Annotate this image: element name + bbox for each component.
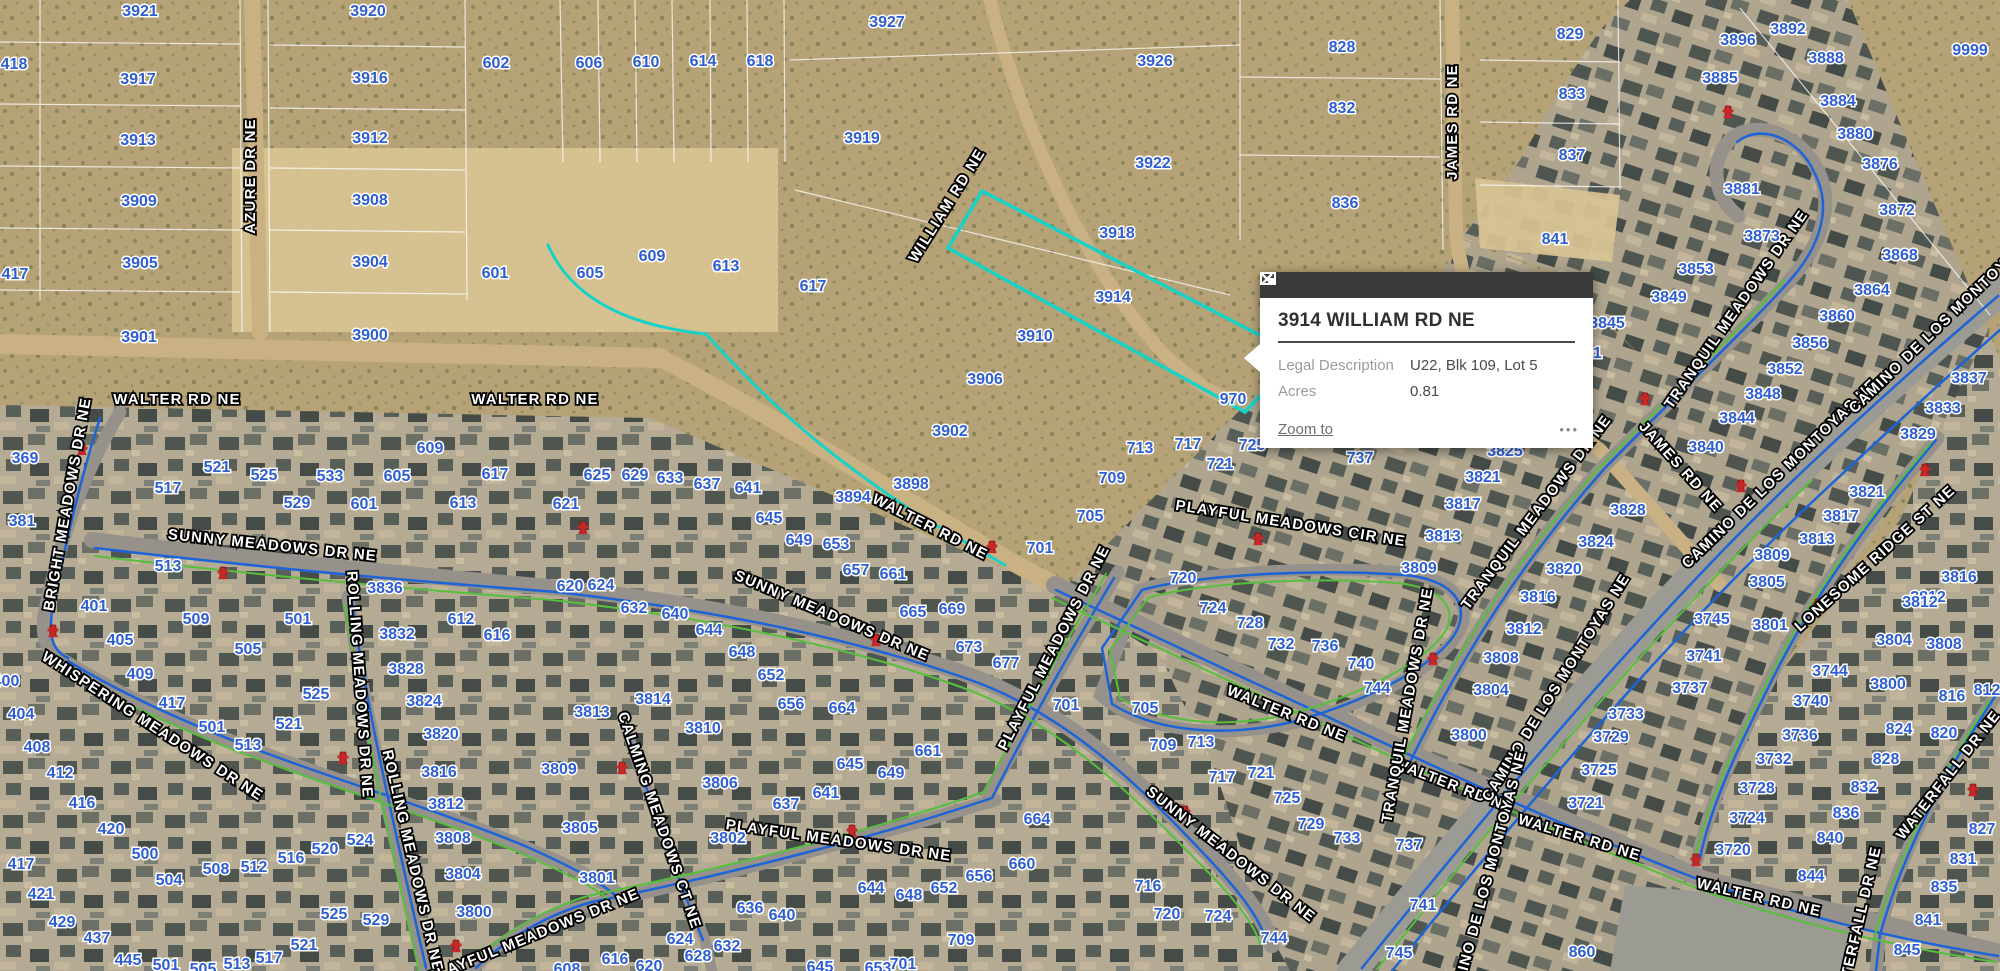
parcel-label[interactable]: 827 bbox=[1969, 821, 1996, 838]
hydrant-arms bbox=[48, 629, 59, 632]
parcel-label[interactable]: 3880 bbox=[1837, 126, 1873, 143]
parcel-label[interactable]: 836 bbox=[1833, 805, 1860, 822]
parcel-label[interactable]: 437 bbox=[84, 930, 111, 947]
feature-popup: 3914 WILLIAM RD NE Legal Description U22… bbox=[1260, 272, 1593, 448]
parcel-label[interactable]: 713 bbox=[1127, 440, 1154, 457]
parcel-label[interactable]: 644 bbox=[858, 880, 885, 897]
parcel-label[interactable]: 3901 bbox=[121, 329, 157, 346]
parcel-label[interactable]: 3848 bbox=[1745, 386, 1781, 403]
parcel-label[interactable]: 3849 bbox=[1651, 289, 1687, 306]
parcel-label[interactable]: 3927 bbox=[869, 14, 905, 31]
parcel-label[interactable]: 3801 bbox=[579, 870, 615, 887]
parcel-label[interactable]: 3820 bbox=[1546, 561, 1582, 578]
parcel-label[interactable]: 500 bbox=[132, 846, 159, 863]
parcel-label[interactable]: 429 bbox=[49, 914, 76, 931]
parcel-label[interactable]: 3817 bbox=[1445, 496, 1481, 513]
parcel-label[interactable]: 3804 bbox=[1473, 682, 1509, 699]
parcel-label[interactable]: 736 bbox=[1312, 638, 1339, 655]
parcel-label[interactable]: 3812 bbox=[428, 796, 464, 813]
parcel-label[interactable]: 3728 bbox=[1739, 780, 1775, 797]
parcel-label[interactable]: 3802 bbox=[710, 830, 746, 847]
parcel-label[interactable]: 632 bbox=[621, 600, 648, 617]
parcel-label[interactable]: 513 bbox=[235, 737, 262, 754]
parcel-label[interactable]: 521 bbox=[291, 937, 318, 954]
parcel-label[interactable]: 3816 bbox=[1941, 569, 1977, 586]
parcel-label[interactable]: 3904 bbox=[352, 254, 388, 271]
parcel-label[interactable]: 660 bbox=[1009, 856, 1036, 873]
parcel-label[interactable]: 3894 bbox=[835, 489, 871, 506]
hydrant-arms bbox=[1253, 537, 1264, 540]
parcel-label[interactable]: 648 bbox=[729, 644, 756, 661]
parcel-label[interactable]: 3821 bbox=[1465, 469, 1501, 486]
parcel-label[interactable]: 724 bbox=[1205, 908, 1232, 925]
parcel-label[interactable]: 3800 bbox=[1870, 676, 1906, 693]
parcel-label[interactable]: 605 bbox=[384, 468, 411, 485]
parcel-label[interactable]: 3913 bbox=[120, 132, 156, 149]
parcel-label[interactable]: 625 bbox=[584, 467, 611, 484]
parcel-label[interactable]: 617 bbox=[800, 278, 827, 295]
parcel-label[interactable]: 3828 bbox=[1610, 502, 1646, 519]
parcel-label[interactable]: 3810 bbox=[685, 720, 721, 737]
parcel-label[interactable]: 661 bbox=[915, 743, 942, 760]
parcel-label[interactable]: 3733 bbox=[1608, 706, 1644, 723]
parcel-label[interactable]: 828 bbox=[1873, 751, 1900, 768]
parcel-label[interactable]: 741 bbox=[1410, 897, 1437, 914]
map-svg[interactable]: AZURE DR NEWILLIAM RD NEJAMES RD NEJAMES… bbox=[0, 0, 2000, 971]
parcel-label[interactable]: 3902 bbox=[932, 423, 968, 440]
parcel-label[interactable]: 609 bbox=[417, 440, 444, 457]
parcel-label[interactable]: 3914 bbox=[1095, 289, 1131, 306]
dock-icon[interactable] bbox=[1541, 278, 1557, 292]
parcel-label[interactable]: 618 bbox=[747, 53, 774, 70]
parcel-label[interactable]: 665 bbox=[900, 604, 927, 621]
parcel-label[interactable]: 3816 bbox=[1520, 589, 1556, 606]
parcel-label[interactable]: 606 bbox=[576, 55, 603, 72]
parcel-label[interactable]: 3844 bbox=[1719, 410, 1755, 427]
parcel-label[interactable]: 709 bbox=[1150, 737, 1177, 754]
field-row: Legal Description U22, Blk 109, Lot 5 bbox=[1278, 353, 1575, 379]
parcel-label[interactable]: 617 bbox=[482, 466, 509, 483]
parcel-label[interactable]: 720 bbox=[1154, 906, 1181, 923]
hydrant-base bbox=[1921, 474, 1930, 476]
parcel-label[interactable]: 605 bbox=[577, 265, 604, 282]
parcel-label[interactable]: 501 bbox=[153, 957, 180, 971]
parcel-label[interactable]: 3812 bbox=[1506, 621, 1542, 638]
parcel-label[interactable]: 616 bbox=[602, 951, 629, 968]
parcel-label[interactable]: 3740 bbox=[1793, 693, 1829, 710]
parcel-label[interactable]: 656 bbox=[966, 868, 993, 885]
parcel-label[interactable]: 3805 bbox=[1749, 574, 1785, 591]
hydrant-base bbox=[1429, 663, 1438, 665]
parcel-label[interactable]: 521 bbox=[204, 459, 231, 476]
parcel-label[interactable]: 3814 bbox=[635, 691, 671, 708]
parcel-label[interactable]: 613 bbox=[713, 258, 740, 275]
parcel-label[interactable]: 417 bbox=[2, 266, 29, 283]
parcel-label[interactable]: 417 bbox=[8, 856, 35, 873]
parcel-label[interactable]: 525 bbox=[321, 906, 348, 923]
popup-body: 3914 WILLIAM RD NE Legal Description U22… bbox=[1260, 298, 1593, 448]
parcel-label[interactable]: 713 bbox=[1188, 734, 1215, 751]
parcel-label[interactable]: 3800 bbox=[1451, 727, 1487, 744]
parcel-label[interactable]: 3837 bbox=[1951, 370, 1987, 387]
parcel-label[interactable]: 3898 bbox=[893, 476, 929, 493]
hydrant-base bbox=[1724, 116, 1733, 118]
parcel-label[interactable]: 705 bbox=[1132, 700, 1159, 717]
parcel-label[interactable]: 3720 bbox=[1715, 842, 1751, 859]
parcel-label[interactable]: 628 bbox=[685, 948, 712, 965]
parcel-label[interactable]: 3920 bbox=[350, 3, 386, 20]
parcel-label[interactable]: 3812 bbox=[1902, 594, 1938, 611]
popup-footer: Zoom to ••• bbox=[1278, 421, 1579, 438]
parcel-label[interactable]: 3804 bbox=[1876, 632, 1912, 649]
hydrant-arms bbox=[218, 571, 229, 574]
parcel-label[interactable]: 3737 bbox=[1672, 680, 1708, 697]
parcel-label[interactable]: 3820 bbox=[423, 726, 459, 743]
parcel-label[interactable]: 721 bbox=[1248, 765, 1275, 782]
parcel-label[interactable]: 3917 bbox=[120, 71, 156, 88]
parcel-label[interactable]: 3809 bbox=[1754, 547, 1790, 564]
parcel-label[interactable]: 3912 bbox=[352, 130, 388, 147]
parcel-label[interactable]: 420 bbox=[98, 821, 125, 838]
parcel-label[interactable]: 641 bbox=[813, 785, 840, 802]
parcel-label[interactable]: 645 bbox=[837, 756, 864, 773]
parcel-label[interactable]: 3921 bbox=[122, 3, 158, 20]
close-icon[interactable] bbox=[1567, 278, 1583, 292]
parcel-label[interactable]: 3840 bbox=[1688, 439, 1724, 456]
zoom-to-link[interactable]: Zoom to bbox=[1278, 421, 1333, 438]
parcel-label[interactable]: 701 bbox=[890, 956, 917, 971]
parcel-label[interactable]: 860 bbox=[1569, 944, 1596, 961]
parcel-label[interactable]: 3900 bbox=[352, 327, 388, 344]
parcel-label[interactable]: 3832 bbox=[379, 626, 415, 643]
parcel-label[interactable]: 3732 bbox=[1756, 751, 1792, 768]
hydrant-arms bbox=[338, 756, 349, 759]
parcel-label[interactable]: 3909 bbox=[121, 193, 157, 210]
parcel-label[interactable]: 517 bbox=[155, 480, 182, 497]
parcel-label[interactable]: 516 bbox=[278, 850, 305, 867]
parcel-label[interactable]: 673 bbox=[956, 639, 983, 656]
parcel-label[interactable]: 3919 bbox=[844, 130, 880, 147]
parcel-label[interactable]: 529 bbox=[284, 495, 311, 512]
street-label: AZURE DR NE bbox=[242, 118, 259, 234]
parcel-label[interactable]: 610 bbox=[633, 54, 660, 71]
parcel-label[interactable]: 3926 bbox=[1137, 53, 1173, 70]
parcel-label[interactable]: 9999 bbox=[1952, 42, 1988, 59]
parcel-label[interactable]: 629 bbox=[622, 467, 649, 484]
parcel-label[interactable]: 3852 bbox=[1767, 361, 1803, 378]
parcel-label[interactable]: 3801 bbox=[1752, 617, 1788, 634]
parcel-label[interactable]: 644 bbox=[696, 622, 723, 639]
parcel-label[interactable]: 3856 bbox=[1792, 335, 1828, 352]
parcel-label[interactable]: 3896 bbox=[1720, 32, 1756, 49]
parcel-label[interactable]: 445 bbox=[115, 952, 142, 969]
parcel-label[interactable]: 501 bbox=[199, 719, 226, 736]
hydrant-base bbox=[49, 635, 58, 637]
parcel-label[interactable]: 812 bbox=[1974, 682, 2000, 699]
parcel-label[interactable]: 653 bbox=[823, 536, 850, 553]
parcel-label[interactable]: 624 bbox=[588, 577, 615, 594]
popup-fields: Legal Description U22, Blk 109, Lot 5 Ac… bbox=[1278, 353, 1575, 406]
parcel-label[interactable]: 745 bbox=[1386, 945, 1413, 962]
parcel-label[interactable]: 664 bbox=[1024, 811, 1051, 828]
parcel-label[interactable]: 725 bbox=[1274, 790, 1301, 807]
parcel-label[interactable]: 525 bbox=[303, 686, 330, 703]
parcel-label[interactable]: 632 bbox=[714, 938, 741, 955]
parcel-label[interactable]: 701 bbox=[1027, 540, 1054, 557]
hydrant-arms bbox=[847, 829, 858, 832]
parcel-label[interactable]: 505 bbox=[235, 641, 262, 658]
parcel-label[interactable]: 3853 bbox=[1678, 261, 1714, 278]
parcel-label[interactable]: 601 bbox=[351, 496, 378, 513]
parcel-label[interactable]: 505 bbox=[190, 961, 217, 971]
parcel-label[interactable]: 614 bbox=[690, 53, 717, 70]
parcel-label[interactable]: 3873 bbox=[1744, 228, 1780, 245]
parcel-label[interactable]: 717 bbox=[1209, 769, 1236, 786]
hydrant-arms bbox=[1968, 788, 1979, 791]
parcel-label[interactable]: 409 bbox=[127, 666, 154, 683]
parcel-label[interactable]: 664 bbox=[829, 700, 856, 717]
parcel-label[interactable]: 3729 bbox=[1593, 729, 1629, 746]
parcel-label[interactable]: 3745 bbox=[1694, 611, 1730, 628]
parcel-label[interactable]: 970 bbox=[1220, 391, 1247, 408]
parcel-label[interactable]: 3828 bbox=[388, 661, 424, 678]
parcel-label[interactable]: 3813 bbox=[1799, 531, 1835, 548]
parcel-label[interactable]: 3721 bbox=[1568, 795, 1604, 812]
parcel-label[interactable]: 3885 bbox=[1702, 70, 1738, 87]
parcel-label[interactable]: 513 bbox=[224, 956, 251, 971]
parcel-label[interactable]: 717 bbox=[1175, 436, 1202, 453]
parcel-label[interactable]: 709 bbox=[1099, 470, 1126, 487]
parcel-label[interactable]: 3800 bbox=[456, 904, 492, 921]
parcel-label[interactable]: 512 bbox=[241, 859, 268, 876]
parcel-label[interactable]: 832 bbox=[1851, 779, 1878, 796]
parcel-label[interactable]: 661 bbox=[880, 566, 907, 583]
parcel-label[interactable]: 633 bbox=[657, 470, 684, 487]
parcel-label[interactable]: 716 bbox=[1135, 878, 1162, 895]
parcel-label[interactable]: 656 bbox=[778, 696, 805, 713]
parcel-label[interactable]: 3744 bbox=[1812, 663, 1848, 680]
parcel-label[interactable]: 669 bbox=[939, 601, 966, 618]
parcel-label[interactable]: 3806 bbox=[702, 775, 738, 792]
parcel-label[interactable]: 369 bbox=[12, 450, 39, 467]
parcel-label[interactable]: 841 bbox=[1915, 912, 1942, 929]
parcel-label[interactable]: 3809 bbox=[541, 761, 577, 778]
parcel-label[interactable]: 828 bbox=[1329, 39, 1356, 56]
parcel-label[interactable]: 412 bbox=[47, 765, 74, 782]
parcel-label[interactable]: 645 bbox=[756, 510, 783, 527]
parcel-label[interactable]: 3881 bbox=[1724, 181, 1760, 198]
parcel-label[interactable]: 3916 bbox=[352, 70, 388, 87]
parcel-label[interactable]: 652 bbox=[931, 880, 958, 897]
parcel-label[interactable]: 501 bbox=[285, 611, 312, 628]
parcel-label[interactable]: 729 bbox=[1298, 816, 1325, 833]
parcel-label[interactable]: 3821 bbox=[1849, 484, 1885, 501]
parcel-label[interactable]: 649 bbox=[786, 532, 813, 549]
parcel-label[interactable]: 720 bbox=[1170, 570, 1197, 587]
parcel-label[interactable]: 833 bbox=[1559, 86, 1586, 103]
parcel-label[interactable]: 525 bbox=[251, 467, 278, 484]
parcel-label[interactable]: 641 bbox=[735, 480, 762, 497]
parcel-label[interactable]: 3833 bbox=[1925, 400, 1961, 417]
parcel-label[interactable]: 609 bbox=[639, 248, 666, 265]
parcel-label[interactable]: 3813 bbox=[1425, 528, 1461, 545]
parcel-label[interactable]: 3864 bbox=[1854, 282, 1890, 299]
parcel-label[interactable]: 657 bbox=[843, 562, 870, 579]
parcel-label[interactable]: 3888 bbox=[1808, 50, 1844, 67]
parcel-label[interactable]: 3808 bbox=[1483, 650, 1519, 667]
hydrant-base bbox=[1692, 864, 1701, 866]
parcel-label[interactable]: 636 bbox=[737, 900, 764, 917]
parcel-label[interactable]: 841 bbox=[1542, 231, 1569, 248]
map-viewer: AZURE DR NEWILLIAM RD NEJAMES RD NEJAMES… bbox=[0, 0, 2000, 971]
street-label: JAMES RD NE bbox=[1444, 64, 1461, 180]
parcel-label[interactable]: 737 bbox=[1396, 837, 1423, 854]
field-value: 0.81 bbox=[1410, 379, 1439, 405]
parcel-label[interactable]: 728 bbox=[1237, 615, 1264, 632]
parcel-label[interactable]: 653 bbox=[865, 960, 892, 971]
parcel-label[interactable]: 824 bbox=[1886, 721, 1913, 738]
parcel-label[interactable]: 602 bbox=[483, 55, 510, 72]
parcel-label[interactable]: 401 bbox=[81, 598, 108, 615]
parcel-label[interactable]: 3908 bbox=[352, 192, 388, 209]
parcel-label[interactable]: 640 bbox=[662, 606, 689, 623]
parcel-label[interactable]: 3884 bbox=[1820, 93, 1856, 110]
parcel-label[interactable]: 652 bbox=[758, 667, 785, 684]
parcel-label[interactable]: 421 bbox=[28, 886, 55, 903]
road bbox=[0, 344, 660, 358]
parcel-label[interactable]: 3845 bbox=[1589, 315, 1625, 332]
parcel-label[interactable]: 3808 bbox=[1926, 636, 1962, 653]
parcel-label[interactable]: 416 bbox=[69, 795, 96, 812]
hydrant-base bbox=[618, 772, 627, 774]
parcel-label[interactable]: 616 bbox=[484, 627, 511, 644]
popup-callout-arrow bbox=[1244, 344, 1260, 372]
parcel-label[interactable]: 3808 bbox=[435, 830, 471, 847]
parcel-label[interactable]: 724 bbox=[1200, 600, 1227, 617]
parcel-label[interactable]: 840 bbox=[1817, 830, 1844, 847]
parcel-label[interactable]: 3836 bbox=[367, 580, 403, 597]
parcel-label[interactable]: 732 bbox=[1268, 636, 1295, 653]
parcel-label[interactable]: 649 bbox=[878, 765, 905, 782]
parcel-label[interactable]: 513 bbox=[155, 558, 182, 575]
parcel-label[interactable]: 3805 bbox=[562, 820, 598, 837]
parcel-label[interactable]: 645 bbox=[807, 959, 834, 971]
parcel-label[interactable]: 744 bbox=[1364, 680, 1391, 697]
parcel-label[interactable]: 533 bbox=[317, 468, 344, 485]
parcel-label[interactable]: 829 bbox=[1557, 26, 1584, 43]
parcel-label[interactable]: 3824 bbox=[1578, 534, 1614, 551]
parcel-label[interactable]: 3736 bbox=[1782, 727, 1818, 744]
parcel-label[interactable]: 3724 bbox=[1729, 810, 1765, 827]
parcel-label[interactable]: 835 bbox=[1931, 879, 1958, 896]
parcel-label[interactable]: 3910 bbox=[1017, 328, 1053, 345]
parcel-label[interactable]: 677 bbox=[993, 655, 1020, 672]
hydrant-arms bbox=[1920, 468, 1931, 471]
parcel-label[interactable]: 831 bbox=[1950, 851, 1977, 868]
parcel-label[interactable]: 3741 bbox=[1686, 648, 1722, 665]
parcel-label[interactable]: 3918 bbox=[1099, 225, 1135, 242]
parcel-label[interactable]: 3725 bbox=[1581, 762, 1617, 779]
parcel-label[interactable]: 529 bbox=[363, 912, 390, 929]
parcel-label[interactable]: 816 bbox=[1939, 688, 1966, 705]
parcel-label[interactable]: 3824 bbox=[406, 693, 442, 710]
parcel-label[interactable]: 608 bbox=[554, 961, 581, 971]
parcel-label[interactable]: 3905 bbox=[122, 255, 158, 272]
parcel-label[interactable]: 3876 bbox=[1862, 156, 1898, 173]
parcel-label[interactable]: 3809 bbox=[1401, 560, 1437, 577]
parcel-label[interactable]: 517 bbox=[256, 950, 283, 967]
ellipsis-menu[interactable]: ••• bbox=[1559, 422, 1579, 437]
parcel-label[interactable]: 837 bbox=[1559, 147, 1586, 164]
parcel-label[interactable]: 400 bbox=[0, 673, 19, 690]
parcel-label[interactable]: 508 bbox=[203, 861, 230, 878]
parcel-label[interactable]: 612 bbox=[448, 611, 475, 628]
parcel-label[interactable]: 640 bbox=[769, 907, 796, 924]
parcel-label[interactable]: 3860 bbox=[1819, 308, 1855, 325]
hydrant-arms bbox=[451, 944, 462, 947]
parcel-label[interactable]: 733 bbox=[1334, 830, 1361, 847]
parcel-label[interactable]: 3906 bbox=[967, 371, 1003, 388]
parcel-label[interactable]: 404 bbox=[8, 706, 35, 723]
parcel-label[interactable]: 637 bbox=[773, 796, 800, 813]
hydrant-arms bbox=[1428, 657, 1439, 660]
hydrant-arms bbox=[617, 766, 628, 769]
parcel-label[interactable]: 524 bbox=[347, 832, 374, 849]
parcel-label[interactable]: 721 bbox=[1207, 456, 1234, 473]
parcel-label[interactable]: 417 bbox=[159, 695, 186, 712]
parcel-label[interactable]: 705 bbox=[1077, 508, 1104, 525]
parcel-label[interactable]: 418 bbox=[1, 56, 28, 73]
parcel-label[interactable]: 624 bbox=[667, 931, 694, 948]
parcel-label[interactable]: 3872 bbox=[1879, 202, 1915, 219]
parcel-label[interactable]: 3922 bbox=[1135, 155, 1171, 172]
hydrant-base bbox=[219, 577, 228, 579]
parcel-label[interactable]: 621 bbox=[553, 496, 580, 513]
parcel-label[interactable]: 3892 bbox=[1770, 21, 1806, 38]
parcel-label[interactable]: 408 bbox=[24, 739, 51, 756]
parcel-label[interactable]: 820 bbox=[1931, 725, 1958, 742]
parcel-label[interactable]: 520 bbox=[312, 841, 339, 858]
parcel-label[interactable]: 845 bbox=[1894, 942, 1921, 959]
parcel-label[interactable]: 613 bbox=[450, 495, 477, 512]
hydrant-base bbox=[579, 532, 588, 534]
parcel-label[interactable]: 521 bbox=[276, 716, 303, 733]
parcel-label[interactable]: 737 bbox=[1347, 450, 1374, 467]
parcel-label[interactable]: 3829 bbox=[1900, 426, 1936, 443]
parcel-label[interactable]: 648 bbox=[896, 887, 923, 904]
parcel-label[interactable]: 504 bbox=[156, 872, 183, 889]
parcel-label[interactable]: 620 bbox=[557, 578, 584, 595]
parcel-label[interactable]: 844 bbox=[1798, 868, 1825, 885]
parcel-label[interactable]: 740 bbox=[1348, 656, 1375, 673]
parcel-label[interactable]: 620 bbox=[636, 958, 663, 971]
parcel-label[interactable]: 709 bbox=[948, 932, 975, 949]
parcel-label[interactable]: 744 bbox=[1261, 930, 1288, 947]
parcel-label[interactable]: 509 bbox=[183, 611, 210, 628]
parcel-label[interactable]: 3813 bbox=[574, 704, 610, 721]
parcel-label[interactable]: 836 bbox=[1332, 195, 1359, 212]
parcel-label[interactable]: 637 bbox=[694, 476, 721, 493]
parcel-label[interactable]: 381 bbox=[9, 513, 36, 530]
parcel-label[interactable]: 701 bbox=[1053, 697, 1080, 714]
parcel-label[interactable]: 3817 bbox=[1823, 508, 1859, 525]
parcel-label[interactable]: 3816 bbox=[421, 764, 457, 781]
parcel-label[interactable]: 3804 bbox=[445, 866, 481, 883]
parcel-label[interactable]: 3868 bbox=[1882, 247, 1918, 264]
parcel-label[interactable]: 405 bbox=[107, 632, 134, 649]
parcel-label[interactable]: 832 bbox=[1329, 100, 1356, 117]
parcel-label[interactable]: 601 bbox=[482, 265, 509, 282]
